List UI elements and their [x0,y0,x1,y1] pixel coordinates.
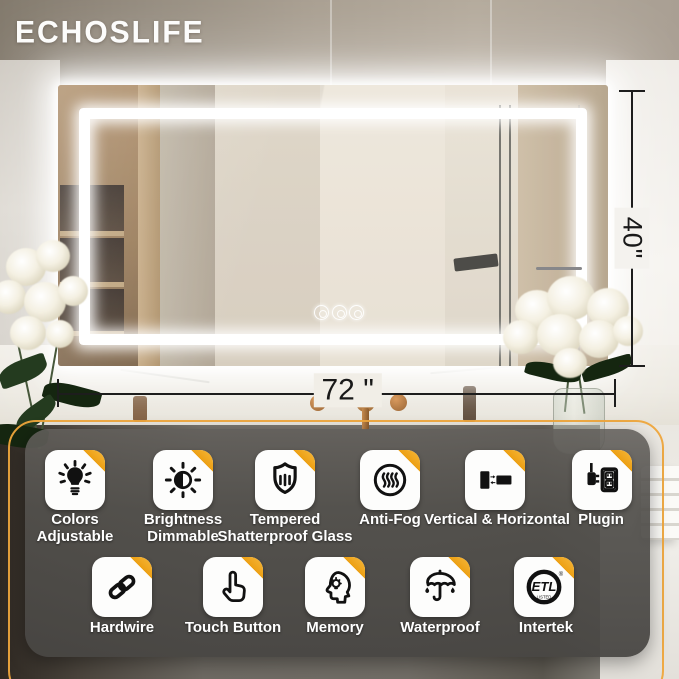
feature-label: Tempered Shatterproof Glass [205,512,365,546]
feature-label: Waterproof [400,620,479,637]
feature-tile-plugin [572,450,632,510]
flower-bloom [503,320,539,354]
flower-bloom [58,276,88,306]
product-image: ECHOSLIFE [0,0,679,679]
flower-bloom [10,316,46,350]
feature-tile-anti-fog [360,450,420,510]
dimension-tick [619,90,645,92]
dimension-tick [57,379,59,407]
feature-label: Memory [306,620,364,637]
feature-tile-hardwire [92,557,152,617]
touch-button-glyph [337,310,345,318]
feature-tile-colors-adjustable [45,450,105,510]
feature-label: Colors Adjustable [23,512,127,546]
dimension-tick [614,379,616,407]
feature-tile-waterproof [410,557,470,617]
mirror-touch-button[interactable] [332,305,347,320]
feature-tile-touch-button [203,557,263,617]
mirror-touch-button[interactable] [314,305,329,320]
tile-seam [330,0,332,95]
height-label: 40" [615,208,650,269]
feature-tile-vertical-horizontal [465,450,525,510]
feature-tile-brightness-dimmable [153,450,213,510]
mirror-touch-button[interactable] [349,305,364,320]
flower-bloom [553,348,587,378]
flower-bloom [46,320,74,348]
width-dimension: 72 " [57,379,616,407]
feature-label: Vertical & Horizontal [424,512,570,529]
dimension-tick [619,365,645,367]
flower-bloom [36,240,70,272]
touch-button-glyph [354,310,362,318]
touch-button-glyph [319,310,327,318]
feature-label: Hardwire [90,620,154,637]
brand-logo: ECHOSLIFE [15,15,205,51]
feature-label: Touch Button [185,620,281,637]
feature-label: Anti-Fog [359,512,421,529]
feature-tile-tempered-glass [255,450,315,510]
feature-tile-intertek: ETL LISTED ® [514,557,574,617]
width-label: 72 " [313,373,381,407]
feature-label: Plugin [578,512,624,529]
height-dimension: 40" [619,90,645,367]
reflection-towel-bar [536,267,582,270]
etl-listed-text: LISTED [537,595,552,600]
etl-mark-text: ETL [532,579,557,594]
feature-label: Intertek [519,620,573,637]
tile-seam [490,0,492,95]
feature-tile-memory [305,557,365,617]
